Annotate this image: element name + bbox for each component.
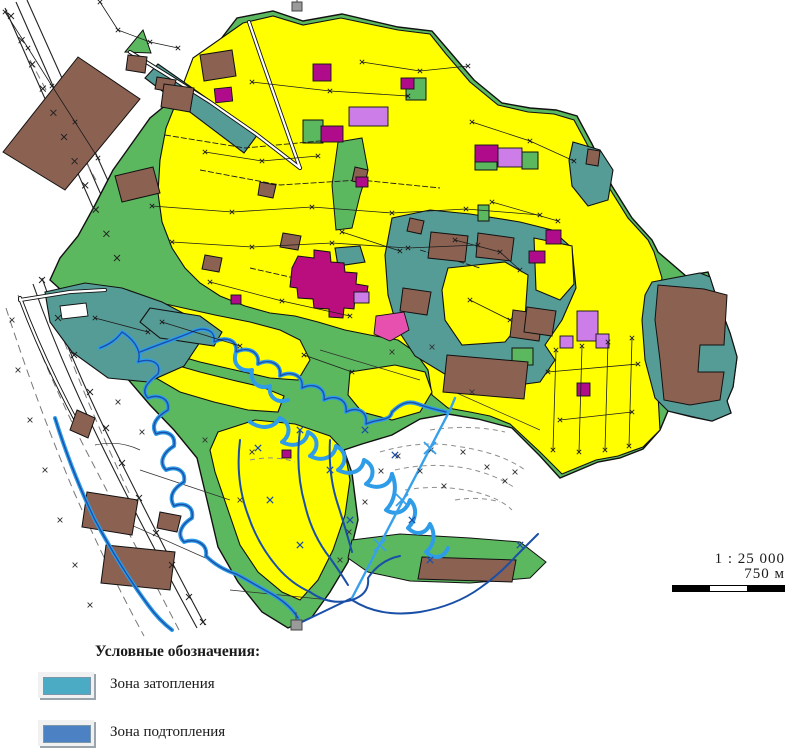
tower-symbol-north bbox=[292, 2, 302, 11]
scale-distance: 750 м bbox=[585, 567, 785, 582]
legend-title: Условные обозначения: bbox=[95, 643, 358, 661]
map-scale: 1 : 25 000 750 м bbox=[585, 552, 785, 592]
map-document: 1 : 25 000 750 м Условные обозначения: З… bbox=[0, 0, 789, 752]
scale-ratio: 1 : 25 000 bbox=[585, 552, 785, 567]
flood-zone-label: Зона затопления bbox=[110, 676, 215, 693]
settlement-flood-map bbox=[0, 0, 789, 752]
underflood-zone-swatch bbox=[43, 725, 91, 743]
underflood-zone-label: Зона подтопления bbox=[110, 724, 225, 741]
tower-symbol-south bbox=[291, 620, 302, 630]
east-industrial-site bbox=[655, 285, 727, 405]
legend: Условные обозначения: Зона затопления Зо… bbox=[38, 643, 358, 661]
farm-building bbox=[443, 355, 528, 399]
flood-zone-swatch-frame bbox=[38, 672, 94, 698]
flood-zone-swatch bbox=[43, 677, 91, 695]
underflood-zone-swatch-frame bbox=[38, 720, 94, 746]
scale-bar bbox=[672, 585, 785, 592]
south-long-building bbox=[418, 557, 516, 582]
